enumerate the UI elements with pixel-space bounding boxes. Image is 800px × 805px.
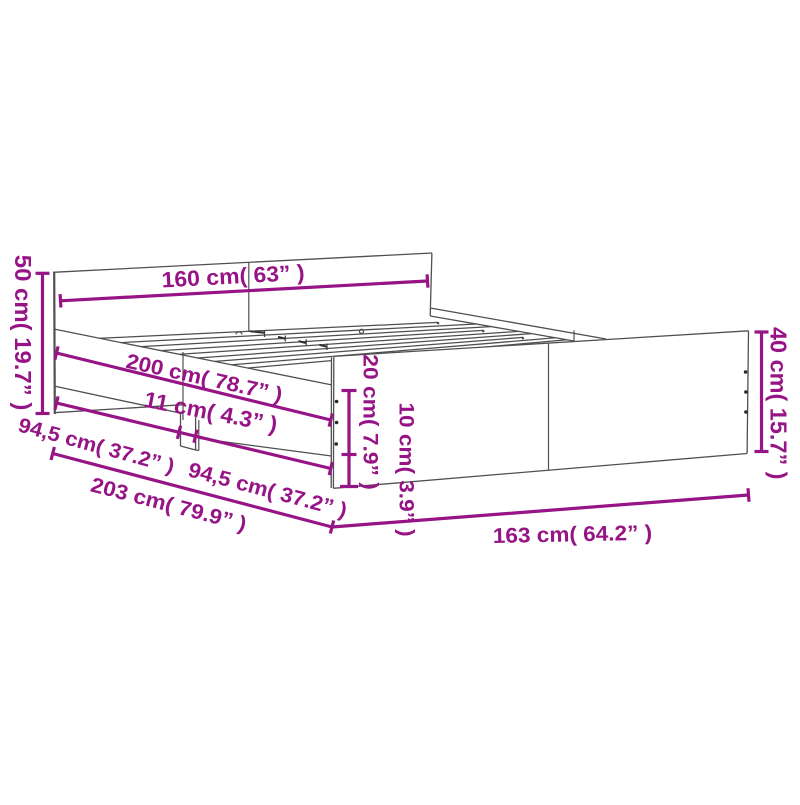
svg-text:40 cm( 15.7” ): 40 cm( 15.7” ) [766,327,792,480]
svg-text:20 cm( 7.9” ): 20 cm( 7.9” ) [359,354,383,490]
svg-text:10 cm( 3.9” ): 10 cm( 3.9” ) [395,403,419,537]
svg-text:50 cm( 19.7” ): 50 cm( 19.7” ) [10,255,35,410]
svg-text:163 cm( 64.2” ): 163 cm( 64.2” ) [493,520,653,548]
svg-text:94,5 cm( 37.2” ): 94,5 cm( 37.2” ) [16,414,177,478]
